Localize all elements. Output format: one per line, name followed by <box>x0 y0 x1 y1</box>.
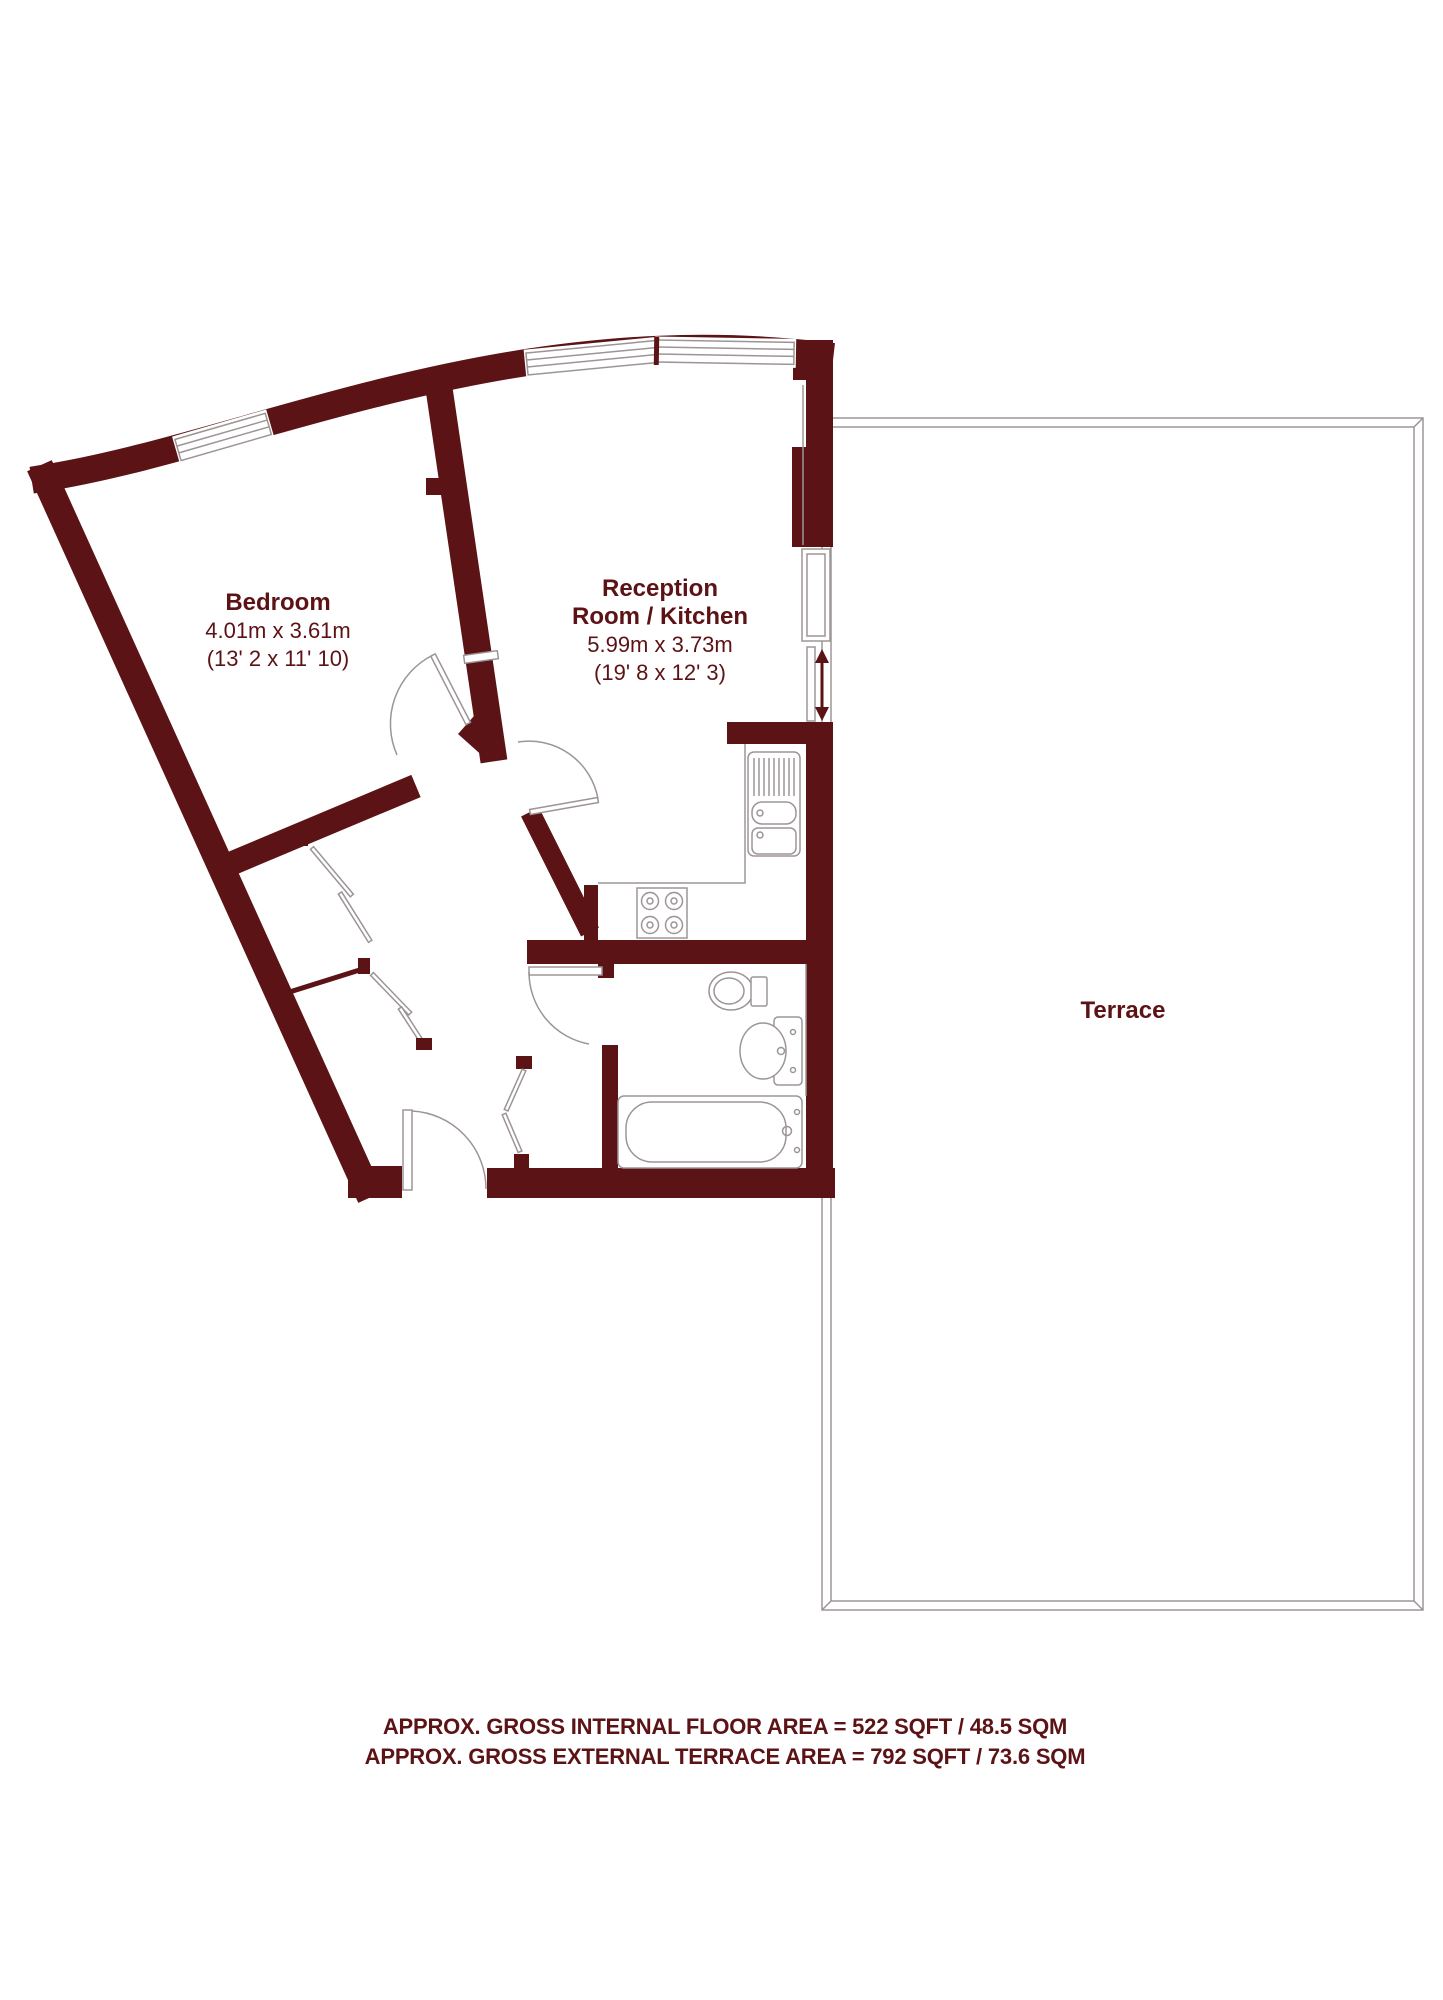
basin-bowl <box>740 1023 786 1079</box>
window-frame <box>175 413 271 460</box>
terrace-sliding-door <box>802 549 830 721</box>
bifold-panel <box>371 973 412 1015</box>
bedroom-size-imperial: (13' 2 x 11' 10) <box>207 646 350 671</box>
kitchen-sink <box>748 752 800 856</box>
entrance-door <box>403 1110 486 1190</box>
bifold-panel <box>338 892 372 942</box>
floorplan-page: Bedroom 4.01m x 3.61m (13' 2 x 11' 10) R… <box>0 0 1443 2000</box>
closet-wall-cap <box>416 1038 432 1050</box>
kitchen-end-stub <box>584 885 598 947</box>
kitchen <box>598 744 800 938</box>
bathroom-door-arc <box>529 972 589 1044</box>
toilet <box>709 972 767 1010</box>
reception-door-arc <box>518 741 598 799</box>
basin <box>740 1017 802 1085</box>
door-leaf <box>530 798 599 815</box>
bedroom-window <box>172 409 274 464</box>
entrance-jamb-wall <box>348 1166 402 1198</box>
bedroom-size-metric: 4.01m x 3.61m <box>205 618 351 643</box>
walls <box>45 340 835 1198</box>
terrace-corner-miter <box>1414 418 1423 427</box>
bedroom-door-arc <box>390 655 433 755</box>
internal-area-text: APPROX. GROSS INTERNAL FLOOR AREA = 522 … <box>383 1714 1067 1739</box>
bottom-wall <box>487 1168 835 1198</box>
bifold-panel <box>502 1113 522 1152</box>
bathroom <box>618 964 806 1168</box>
bifold-panel <box>504 1069 526 1111</box>
closet-bifold-leaf <box>338 892 372 942</box>
footer: APPROX. GROSS INTERNAL FLOOR AREA = 522 … <box>365 1714 1086 1769</box>
right-wall-upper <box>806 372 833 547</box>
slide-direction-arrow-icon <box>815 649 829 721</box>
closet-bifold-leaf <box>371 973 412 1015</box>
bedroom-label: Bedroom <box>225 589 330 616</box>
closet-bifold-leaf <box>504 1069 526 1111</box>
kitchen-top-wall <box>727 722 833 744</box>
bathroom-left-wall <box>602 1045 618 1175</box>
bath-inner <box>626 1102 786 1162</box>
closet-wall-cap <box>514 1154 529 1168</box>
reception-door <box>518 741 598 814</box>
closet-wall-cap <box>296 829 308 846</box>
hallway-kitchen-wall <box>530 812 590 932</box>
windows <box>172 336 796 464</box>
window-frame <box>657 340 794 364</box>
hob <box>637 888 687 938</box>
kitchen-counter-edge <box>598 744 745 883</box>
right-wall-step <box>792 447 806 547</box>
sliding-panel-track <box>807 647 815 721</box>
closet-side-wall <box>280 968 366 995</box>
reception-size-metric: 5.99m x 3.73m <box>587 632 733 657</box>
toilet-cistern <box>751 977 767 1006</box>
bifold-panel <box>310 847 353 897</box>
bathroom-door <box>529 967 602 1044</box>
terrace-area-text: APPROX. GROSS EXTERNAL TERRACE AREA = 79… <box>365 1744 1086 1769</box>
floor-plan: Bedroom 4.01m x 3.61m (13' 2 x 11' 10) R… <box>0 0 1443 2000</box>
reception-label-line1: Reception <box>602 575 718 602</box>
reception-door-leaf <box>530 798 599 815</box>
bathtub <box>618 1096 802 1168</box>
window-mullion <box>654 337 659 365</box>
reception-window-right <box>654 336 796 367</box>
arrow-head-up <box>815 649 829 663</box>
closet-bifold-leaf <box>310 847 353 897</box>
bathroom-door-leaf <box>529 967 602 975</box>
door-leaf <box>431 654 471 725</box>
terrace-corner-miter <box>1414 1601 1423 1610</box>
terrace-label: Terrace <box>1081 997 1166 1024</box>
bedroom-reception-divider-wall <box>441 402 492 748</box>
bedroom-door-leaf <box>431 654 471 725</box>
sink-bowl-small <box>752 802 796 824</box>
reception-label-line2: Room / Kitchen <box>572 603 748 630</box>
terrace-corner-miter <box>822 1601 831 1610</box>
closet-wall-cap <box>516 1056 532 1069</box>
closet-wall-cap <box>358 958 370 974</box>
divider-wall-step <box>426 478 442 495</box>
reception-size-imperial: (19' 8 x 12' 3) <box>594 660 726 685</box>
sliding-panel-inner <box>807 554 825 636</box>
entrance-door-leaf <box>403 1110 412 1190</box>
kitchen-bathroom-wall <box>527 940 833 964</box>
entrance-door-arc <box>412 1111 486 1189</box>
arrow-head-down <box>815 707 829 721</box>
closet-bifold-leaf <box>502 1113 522 1152</box>
